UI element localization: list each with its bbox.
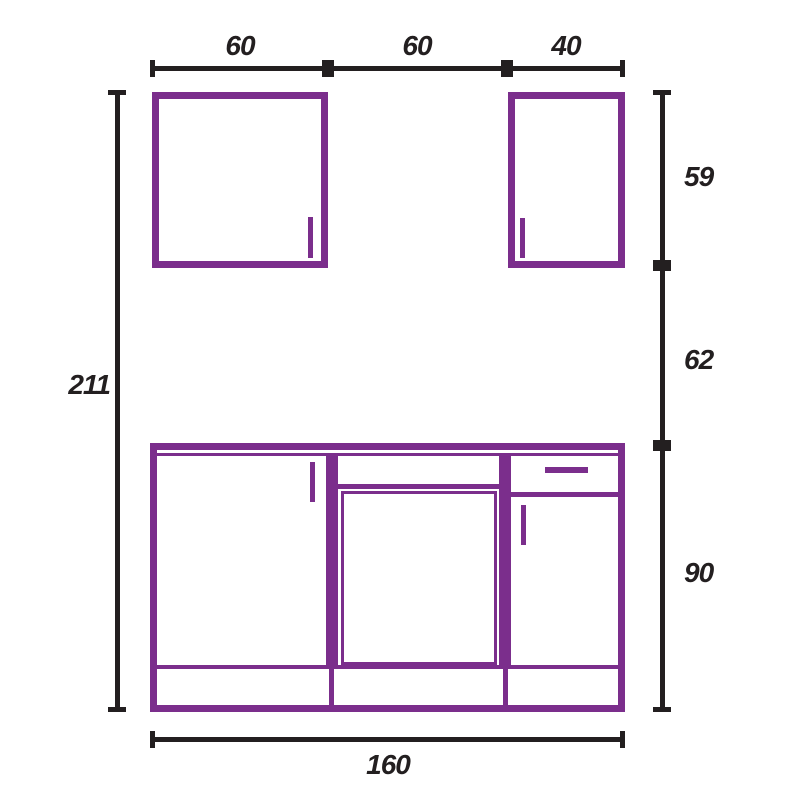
countertop-underline [157, 453, 618, 456]
right-dim-tick-2 [653, 440, 671, 451]
dim-label-right-90: 90 [684, 559, 744, 587]
kitchen-elevation-diagram: 60 60 40 211 59 62 90 160 [0, 0, 800, 800]
plinth-divider-2 [503, 669, 508, 705]
plinth-divider-1 [329, 669, 334, 705]
base-middle-door [341, 491, 497, 665]
wall-cabinet-right-door-handle [520, 218, 525, 258]
top-dim-tick-2 [501, 60, 513, 77]
wall-cabinet-right [508, 92, 625, 268]
top-dim-endcap-right [620, 60, 625, 77]
top-dim-tick-1 [322, 60, 334, 77]
dim-label-right-62: 62 [684, 346, 744, 374]
drawer-handle [545, 467, 588, 473]
left-dim-endcap-top [108, 90, 126, 95]
base-left-door-handle [310, 462, 315, 502]
wall-cabinet-left-door-handle [308, 217, 313, 258]
dim-label-left-211: 211 [46, 371, 110, 399]
top-dimension-line [152, 66, 625, 71]
dim-label-top-60-middle: 60 [377, 32, 457, 60]
right-dim-endcap-bottom [653, 707, 671, 712]
drawer-bottom-line [511, 492, 618, 497]
left-dim-endcap-bottom [108, 707, 126, 712]
plinth-top-line [157, 665, 618, 669]
right-dim-endcap-top [653, 90, 671, 95]
dim-label-right-59: 59 [684, 163, 744, 191]
left-dimension-line [115, 92, 120, 712]
base-separator-2 [499, 456, 511, 668]
bottom-dim-endcap-left [150, 731, 155, 748]
dim-label-top-60-left: 60 [200, 32, 280, 60]
dim-label-top-40: 40 [526, 32, 606, 60]
base-right-door-handle [521, 505, 526, 545]
base-separator-1 [326, 456, 338, 668]
bottom-dim-endcap-right [620, 731, 625, 748]
bottom-dimension-line [152, 737, 624, 742]
false-front-bottom-line [338, 484, 499, 489]
right-dim-tick-1 [653, 260, 671, 271]
wall-cabinet-left [152, 92, 328, 268]
top-dim-endcap-left [150, 60, 155, 77]
right-dimension-line [660, 92, 665, 712]
dim-label-bottom-160: 160 [338, 751, 438, 779]
